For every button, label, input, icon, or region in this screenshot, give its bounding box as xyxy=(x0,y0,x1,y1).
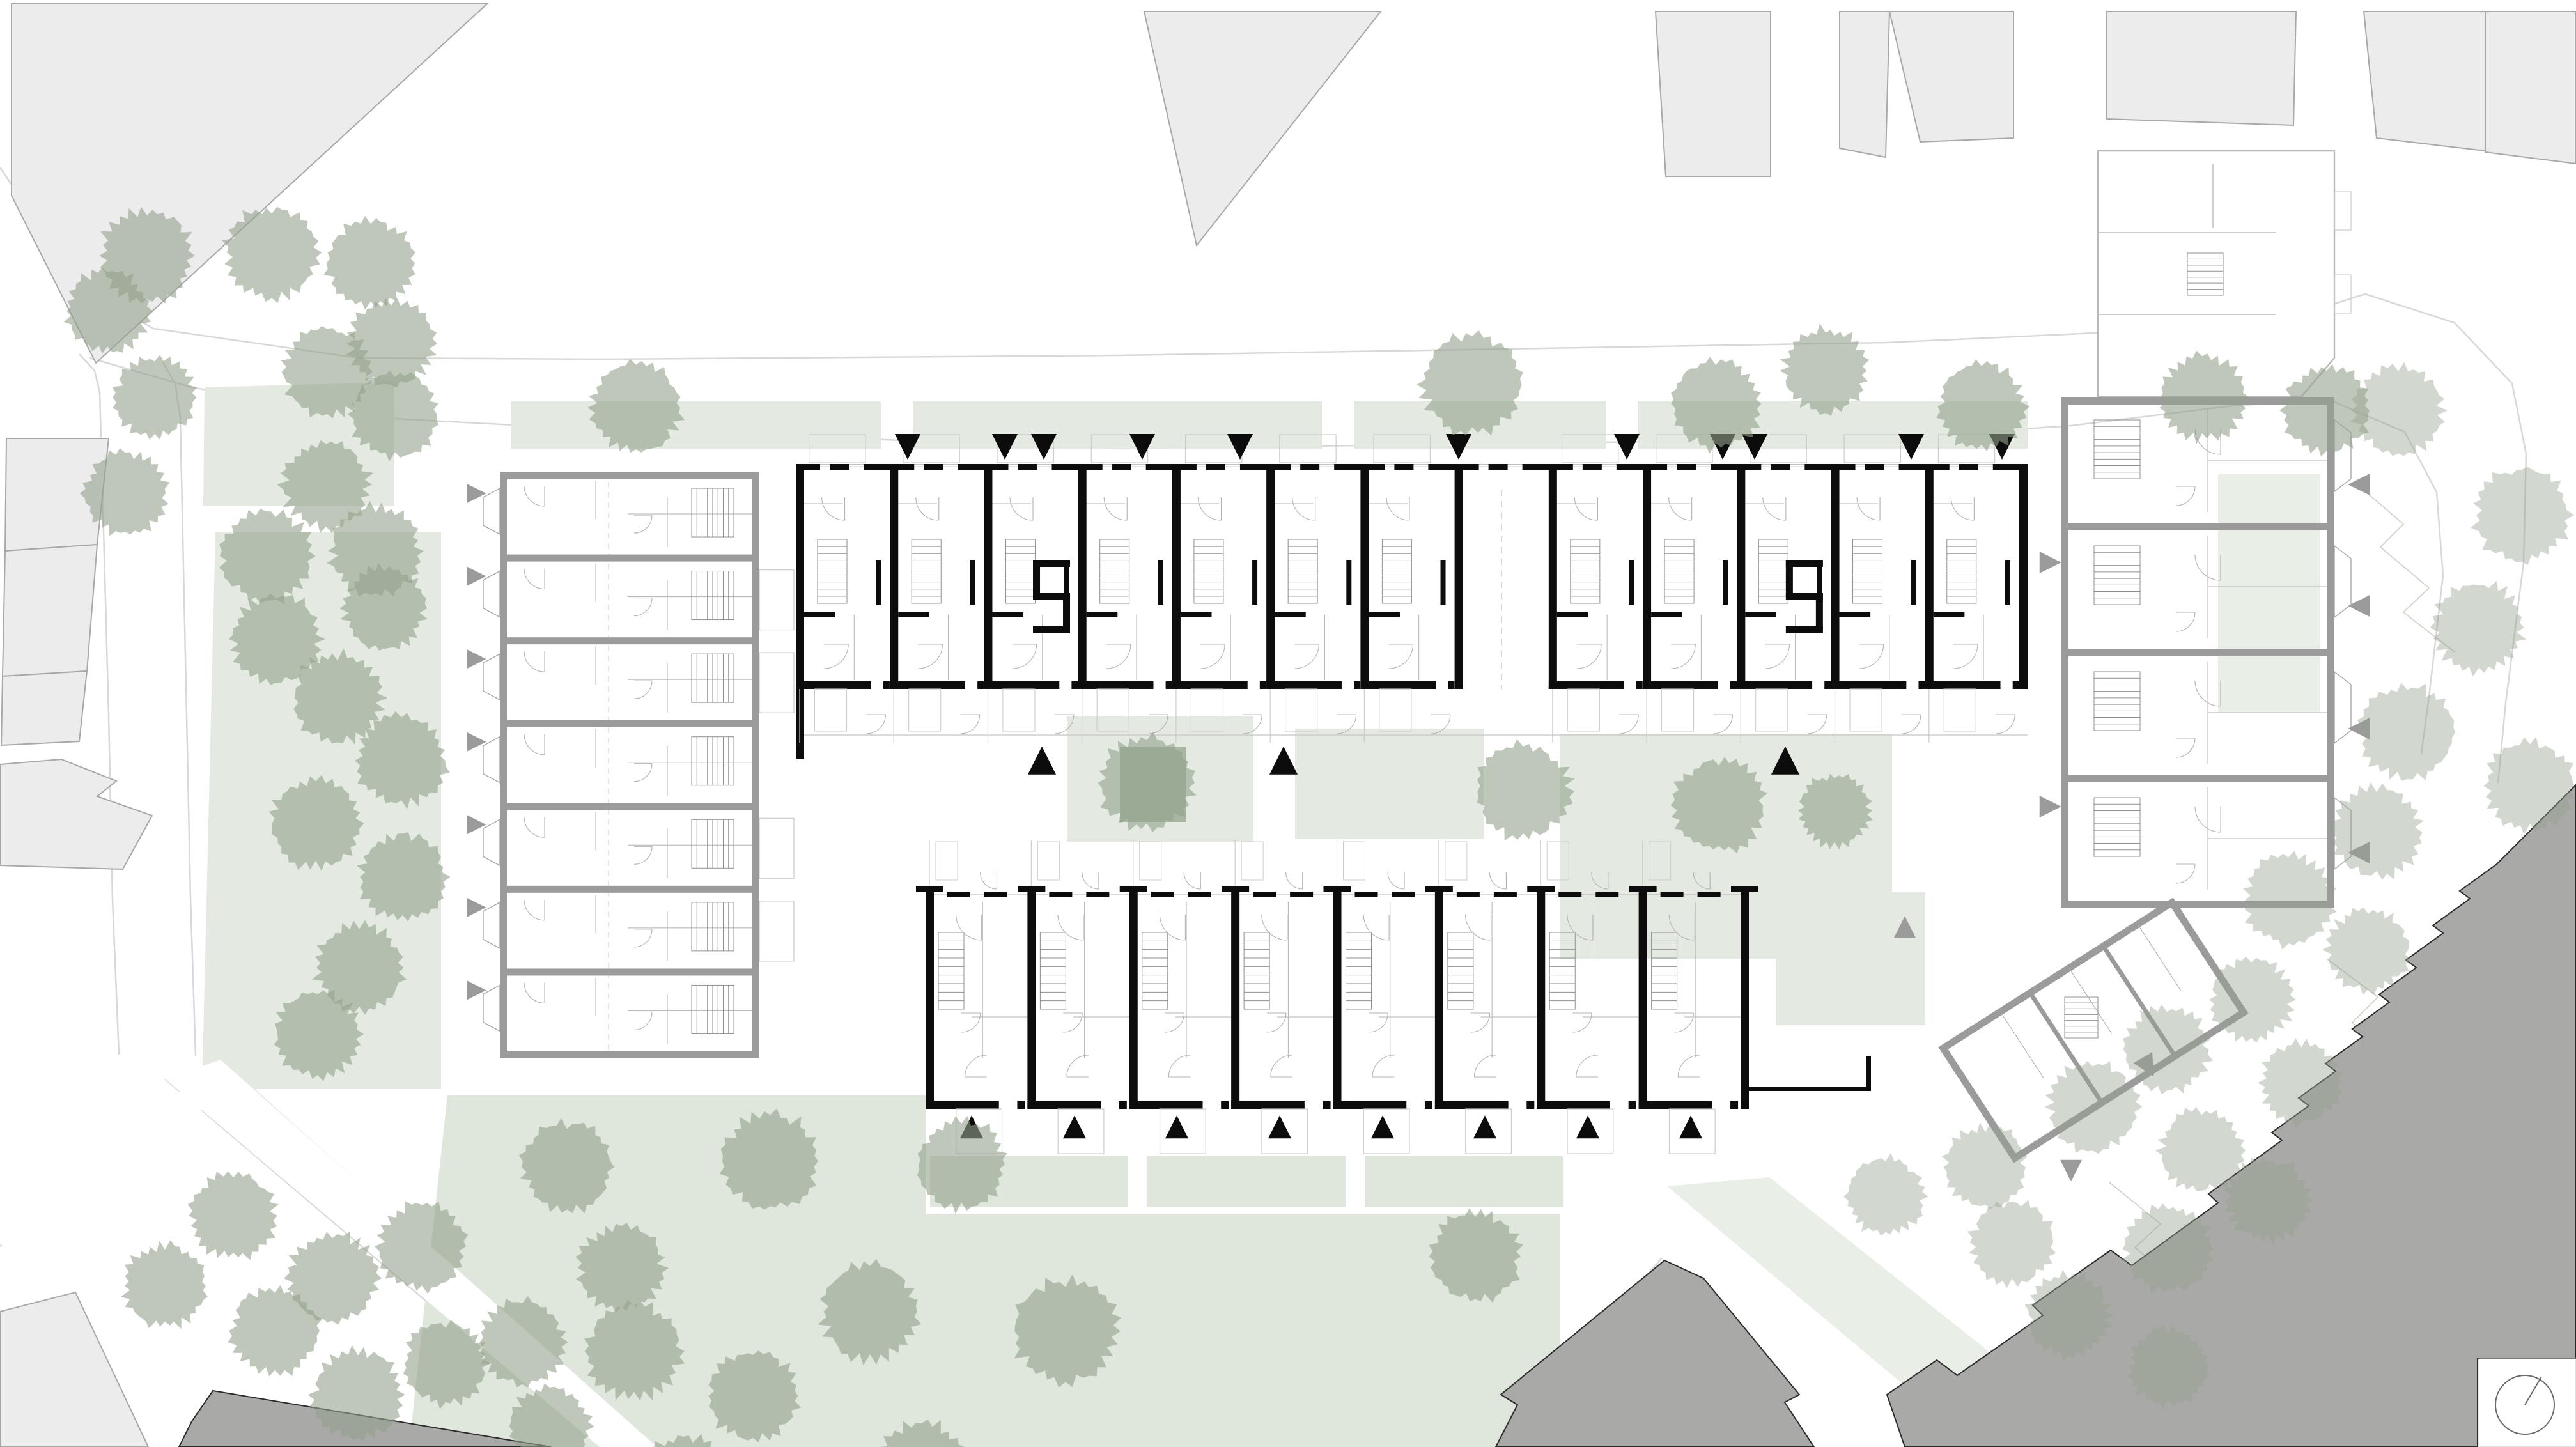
stairs xyxy=(692,737,734,785)
stairs-outline xyxy=(1142,932,1168,1009)
exterior-wall xyxy=(984,892,1007,897)
stairs xyxy=(1244,932,1269,1009)
party-wall xyxy=(500,968,759,975)
door-swing xyxy=(634,929,652,947)
stairs-outline xyxy=(1346,932,1372,1009)
door-swing xyxy=(1165,1013,1184,1032)
exterior-wall xyxy=(1494,892,1517,897)
exterior-wall xyxy=(830,464,849,470)
exterior-wall xyxy=(1027,1101,1101,1109)
stairs-outline xyxy=(2094,798,2140,856)
party-wall xyxy=(500,555,759,562)
terrace-unit xyxy=(1643,435,1737,743)
context-building xyxy=(3,545,97,676)
terrace-unit xyxy=(1455,464,1549,689)
door-swing xyxy=(1369,1013,1388,1032)
wall-cap xyxy=(1222,886,1249,892)
door-jamb xyxy=(1260,681,1266,689)
context-building xyxy=(1889,12,2013,142)
door-swing xyxy=(1572,1013,1592,1032)
tree xyxy=(2357,683,2455,780)
bay-window xyxy=(2334,672,2351,743)
exterior-wall xyxy=(1537,1101,1610,1109)
stairs xyxy=(2094,546,2140,605)
stairs xyxy=(692,902,734,951)
party-wall xyxy=(500,886,759,893)
lawn xyxy=(1776,892,1925,1025)
tree xyxy=(2327,782,2424,880)
party-wall xyxy=(890,464,898,689)
stairs-outline xyxy=(2094,546,2140,605)
exterior-wall xyxy=(890,681,965,689)
door-swing xyxy=(1267,1013,1286,1032)
interior-wall xyxy=(1252,560,1257,605)
context-building xyxy=(0,759,152,869)
door-swing xyxy=(1577,644,1601,669)
party-wall xyxy=(1172,464,1181,689)
interior-wall xyxy=(898,612,929,617)
garden-bay xyxy=(1662,689,1694,731)
stairs xyxy=(1947,539,1976,603)
party-wall xyxy=(1231,892,1239,1109)
door-swing xyxy=(1294,644,1319,669)
terrace-unit xyxy=(467,646,795,713)
core-wall xyxy=(1033,560,1040,596)
door-swing xyxy=(1198,497,1221,520)
exterior-wall xyxy=(1151,892,1174,897)
tree xyxy=(2350,362,2448,456)
door-swing xyxy=(2176,864,2195,883)
interior-wall xyxy=(1158,560,1163,605)
terrace-unit xyxy=(1737,435,1831,743)
exterior-wall xyxy=(1290,892,1313,897)
terrace-unit xyxy=(467,564,795,630)
exterior-wall xyxy=(1266,464,1291,470)
balcony xyxy=(759,570,794,630)
door-swing xyxy=(1271,1055,1292,1077)
door-swing xyxy=(1489,872,1506,889)
stairs xyxy=(692,819,734,868)
door-jamb xyxy=(1730,681,1737,689)
garden-strip xyxy=(1365,1156,1563,1207)
context-building xyxy=(2485,12,2576,164)
exterior-wall xyxy=(1617,464,1643,470)
exterior-wall xyxy=(1661,892,1684,897)
door-swing xyxy=(1160,915,1185,940)
exterior-wall xyxy=(1172,681,1248,689)
party-wall xyxy=(1831,464,1840,689)
garden-shed xyxy=(1241,842,1263,880)
party-wall xyxy=(1078,464,1087,689)
boundary-wall xyxy=(1749,1087,1870,1091)
door-jamb xyxy=(1017,1101,1025,1109)
exterior-wall xyxy=(1428,464,1455,470)
door-jamb xyxy=(1526,1101,1534,1109)
door-swing xyxy=(1058,915,1083,940)
wall-cap xyxy=(1629,886,1657,892)
door-swing xyxy=(1067,1055,1089,1077)
wall-cap xyxy=(1120,886,1147,892)
interior-wall xyxy=(1629,560,1634,605)
party-wall xyxy=(500,803,759,810)
exterior-wall xyxy=(1737,464,1761,470)
hedge-strip xyxy=(511,401,881,449)
stairs xyxy=(1005,539,1035,603)
terrace-unit xyxy=(984,435,1078,743)
party-wall xyxy=(1549,464,1557,689)
stairs xyxy=(1571,539,1600,603)
door-jamb xyxy=(1629,1101,1636,1109)
door-swing xyxy=(1674,1013,1693,1032)
door-swing xyxy=(1363,915,1389,940)
door-swing xyxy=(634,1012,652,1030)
stairs xyxy=(938,932,964,1009)
party-wall xyxy=(2061,775,2334,782)
stairs-outline xyxy=(1947,539,1976,603)
interior-wall xyxy=(1087,612,1118,617)
stairs xyxy=(1142,932,1168,1009)
stairs xyxy=(1853,539,1882,603)
exterior-wall xyxy=(1489,464,1508,470)
door-swing xyxy=(1765,644,1789,669)
garden-shed xyxy=(936,842,958,880)
garden-shed xyxy=(1140,842,1161,880)
door-jamb xyxy=(1636,681,1643,689)
exterior-wall xyxy=(1112,464,1131,470)
stairs xyxy=(1040,932,1066,1009)
door-swing xyxy=(1292,497,1315,520)
context-building xyxy=(1840,12,1889,157)
door-swing xyxy=(524,817,545,837)
interior-wall xyxy=(1911,560,1916,605)
door-swing xyxy=(524,486,545,506)
exterior-wall xyxy=(1392,892,1415,897)
party-wall xyxy=(1027,892,1036,1109)
context-building xyxy=(0,1292,148,1447)
terrace-unit xyxy=(467,481,752,547)
entrance-marker xyxy=(1473,1115,1496,1138)
exterior-wall xyxy=(1129,1101,1203,1109)
party-wall xyxy=(500,472,759,479)
core-wall xyxy=(1786,626,1823,633)
exterior-wall xyxy=(926,1101,999,1109)
exterior-wall xyxy=(1394,464,1413,470)
terrace-unit xyxy=(1831,435,1926,743)
north-arrow-box xyxy=(2479,1359,2576,1447)
door-jamb xyxy=(1730,1101,1738,1109)
door-swing xyxy=(1996,715,2015,734)
door-swing xyxy=(634,515,652,533)
door-swing xyxy=(961,1013,981,1032)
door-swing xyxy=(956,915,982,940)
party-wall xyxy=(2061,649,2334,656)
door-jamb xyxy=(977,681,984,689)
door-swing xyxy=(1678,1055,1700,1077)
door-swing xyxy=(1576,1055,1598,1077)
entrance-marker xyxy=(1268,1115,1291,1138)
door-swing xyxy=(1714,715,1733,734)
exterior-wall xyxy=(1266,681,1342,689)
exterior-wall xyxy=(947,892,970,897)
door-swing xyxy=(1808,715,1827,734)
exterior-wall xyxy=(1435,1101,1509,1109)
door-swing xyxy=(524,982,545,1003)
stairs xyxy=(912,539,941,603)
core-wall xyxy=(1063,593,1070,630)
exterior-wall xyxy=(1206,464,1225,470)
door-swing xyxy=(634,681,652,699)
door-swing xyxy=(824,644,848,669)
wall-cap xyxy=(1731,886,1758,892)
exterior-wall xyxy=(796,464,820,470)
door-swing xyxy=(1619,715,1638,734)
door-swing xyxy=(916,497,939,520)
garden-bay xyxy=(1944,689,1976,731)
stairs xyxy=(1448,932,1473,1009)
exterior-wall xyxy=(1865,464,1884,470)
garden-bay xyxy=(1379,689,1411,731)
wall-cap xyxy=(1324,886,1351,892)
door-jamb xyxy=(1071,681,1078,689)
stairs-outline xyxy=(2094,672,2140,731)
door-swing xyxy=(918,644,942,669)
door-swing xyxy=(1010,497,1033,520)
party-wall xyxy=(1737,464,1745,689)
exterior-wall xyxy=(1643,464,1667,470)
door-swing xyxy=(866,715,885,734)
exterior-wall xyxy=(1334,464,1361,470)
door-swing xyxy=(1859,644,1884,669)
bay-window xyxy=(483,488,500,534)
stairs xyxy=(1346,932,1372,1009)
terrace-unit xyxy=(467,977,752,1044)
stairs-outline xyxy=(1244,932,1269,1009)
core-wall xyxy=(1033,626,1070,633)
exterior-wall xyxy=(1078,464,1103,470)
door-jamb xyxy=(1119,1101,1127,1109)
upper-terrace xyxy=(796,434,2028,775)
stairs-outline xyxy=(938,932,964,1009)
exterior-wall xyxy=(1188,892,1211,897)
party-wall xyxy=(1639,892,1647,1109)
door-swing xyxy=(1466,915,1491,940)
terrace-unit xyxy=(1925,435,2020,743)
tree xyxy=(2430,581,2527,676)
stairs xyxy=(1288,539,1317,603)
door-swing xyxy=(1857,497,1880,520)
exterior-wall xyxy=(1698,892,1721,897)
stairs-outline xyxy=(1448,932,1473,1009)
party-wall xyxy=(1435,892,1443,1109)
garden-bay xyxy=(909,689,941,731)
tree xyxy=(188,1172,279,1260)
interior-wall xyxy=(1275,612,1306,617)
context-building xyxy=(1144,12,1381,245)
stairs xyxy=(692,654,734,702)
door-swing xyxy=(1168,1055,1190,1077)
bay-window xyxy=(483,819,500,865)
party-wall xyxy=(500,1051,759,1058)
exterior-wall xyxy=(1300,464,1319,470)
door-swing xyxy=(1953,644,1978,669)
stairs-outline xyxy=(1040,932,1066,1009)
door-swing xyxy=(1104,497,1127,520)
terrace-unit xyxy=(1266,435,1361,743)
wall-cap xyxy=(916,886,943,892)
entrance-marker xyxy=(2060,1160,2082,1182)
exterior-wall xyxy=(1771,464,1790,470)
bay-window xyxy=(2334,546,2351,617)
stairs xyxy=(1194,539,1223,603)
exterior-wall xyxy=(1049,892,1072,897)
exterior-wall xyxy=(1737,681,1812,689)
exterior-wall xyxy=(1643,681,1718,689)
stairs xyxy=(2094,420,2140,479)
door-swing xyxy=(2176,612,2195,631)
site-plan-canvas xyxy=(0,0,2576,1447)
door-swing xyxy=(1389,644,1413,669)
party-wall xyxy=(1266,464,1275,689)
stairs xyxy=(692,985,734,1033)
context-building xyxy=(2107,12,2296,125)
garden-bay xyxy=(1285,689,1317,731)
door-swing xyxy=(1671,644,1695,669)
door-swing xyxy=(634,764,652,782)
door-swing xyxy=(524,651,545,672)
door-jamb xyxy=(1323,1101,1331,1109)
bay-window xyxy=(2334,275,2351,313)
terrace-unit xyxy=(1360,435,1455,743)
entrance-marker xyxy=(1269,747,1298,775)
exterior-wall xyxy=(1959,464,1978,470)
entrance-marker xyxy=(1028,747,1056,775)
exterior-wall xyxy=(1455,464,1479,470)
exterior-wall xyxy=(1925,464,1950,470)
tree xyxy=(323,216,415,310)
door-swing xyxy=(2176,486,2195,506)
bay-window xyxy=(483,737,500,783)
terrace-unit xyxy=(1172,435,1267,743)
party-wall xyxy=(1360,464,1369,689)
stairs-outline xyxy=(1194,539,1223,603)
interior-wall xyxy=(1346,560,1351,605)
door-swing xyxy=(1262,915,1287,940)
door-jamb xyxy=(883,681,890,689)
interior-wall xyxy=(1441,560,1446,605)
stairs-outline xyxy=(1005,539,1035,603)
garden-bay xyxy=(1003,689,1035,731)
exterior-wall xyxy=(1360,464,1385,470)
wall-cap xyxy=(1018,886,1045,892)
exterior-wall xyxy=(890,464,914,470)
door-swing xyxy=(2176,738,2195,757)
context-building xyxy=(1,671,87,745)
exterior-wall xyxy=(1549,681,1624,689)
balcony xyxy=(759,818,794,878)
door-jamb xyxy=(1918,681,1925,689)
balcony xyxy=(759,901,794,961)
door-jamb xyxy=(1221,1101,1229,1109)
party-wall xyxy=(926,892,934,1109)
context-building xyxy=(2364,12,2485,151)
exterior-wall xyxy=(1831,681,1907,689)
exterior-wall xyxy=(1457,892,1480,897)
door-swing xyxy=(1763,497,1786,520)
interior-wall xyxy=(1840,612,1871,617)
bay-window xyxy=(2334,192,2351,230)
site-plan xyxy=(0,0,2576,1447)
entrance-marker xyxy=(1679,1115,1702,1138)
door-jamb xyxy=(2013,681,2019,689)
door-swing xyxy=(822,497,845,520)
stairs xyxy=(692,488,734,537)
garden-shed xyxy=(1344,842,1365,880)
party-wall xyxy=(2061,523,2334,530)
interior-wall xyxy=(992,612,1023,617)
party-wall xyxy=(1129,892,1138,1109)
exterior-wall xyxy=(1639,1101,1712,1109)
door-swing xyxy=(1574,497,1597,520)
terrace-unit xyxy=(1549,435,1643,743)
terrace-unit xyxy=(467,895,795,961)
stairs-outline xyxy=(1288,539,1317,603)
exterior-wall xyxy=(1899,464,1926,470)
door-swing xyxy=(965,1055,987,1077)
garden-bay xyxy=(1850,689,1882,731)
door-swing xyxy=(1063,1013,1082,1032)
door-swing xyxy=(524,569,545,589)
exterior-wall xyxy=(1595,892,1618,897)
balcony xyxy=(759,653,794,713)
tree xyxy=(2243,851,2337,950)
exterior-wall xyxy=(1086,892,1109,897)
exterior-wall xyxy=(1360,681,1436,689)
entrance-marker xyxy=(1576,1115,1599,1138)
lawn xyxy=(2218,474,2320,712)
door-swing xyxy=(1286,872,1303,889)
exterior-wall xyxy=(924,464,943,470)
interior-wall xyxy=(1557,612,1588,617)
terrace-unit xyxy=(1078,435,1173,743)
tree xyxy=(121,1240,208,1329)
stairs-outline xyxy=(1853,539,1882,603)
door-swing xyxy=(1475,1055,1496,1077)
interior-wall xyxy=(1934,612,1965,617)
exterior-wall xyxy=(1993,464,2020,470)
stairs xyxy=(1100,539,1129,603)
exterior-wall xyxy=(1333,1101,1407,1109)
wall-cap xyxy=(1425,886,1453,892)
entrance-marker xyxy=(1614,434,1640,460)
entrance-marker xyxy=(1063,1115,1086,1138)
stairs-outline xyxy=(1758,539,1788,603)
stairs-outline xyxy=(2094,420,2140,479)
exterior-wall xyxy=(1018,464,1037,470)
tree xyxy=(1843,1153,1928,1235)
garden-shed xyxy=(1037,842,1059,880)
party-wall xyxy=(500,720,759,727)
interior-wall xyxy=(1745,612,1776,617)
stairs-outline xyxy=(1100,539,1129,603)
door-swing xyxy=(1184,872,1200,889)
exterior-wall xyxy=(1172,464,1197,470)
terrace-unit xyxy=(467,812,795,878)
exterior-wall xyxy=(1583,464,1602,470)
tree xyxy=(2471,467,2574,565)
entrance-marker xyxy=(1165,1115,1188,1138)
terrace-unit xyxy=(796,435,890,743)
door-swing xyxy=(1388,872,1404,889)
